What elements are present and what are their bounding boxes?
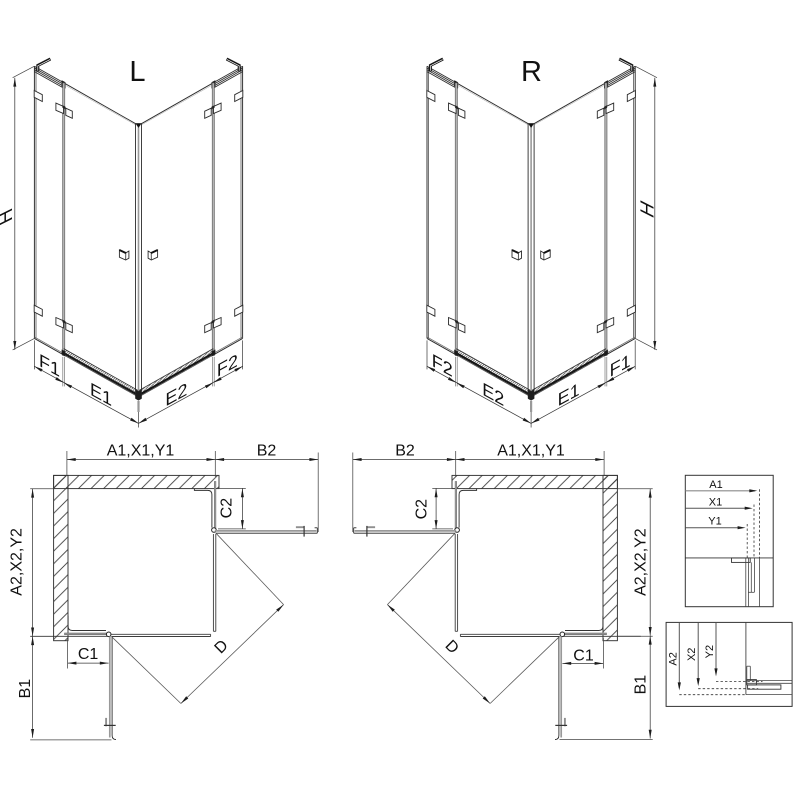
svg-text:Y2: Y2 <box>704 645 716 658</box>
svg-text:A1,X1,Y1: A1,X1,Y1 <box>107 442 175 459</box>
svg-text:A2,X2,Y2: A2,X2,Y2 <box>633 528 650 596</box>
svg-text:Y1: Y1 <box>708 516 721 528</box>
svg-text:X2: X2 <box>686 648 698 661</box>
svg-text:B1: B1 <box>17 679 34 699</box>
svg-text:L: L <box>129 56 145 88</box>
svg-text:C1: C1 <box>573 647 594 664</box>
svg-text:B2: B2 <box>257 442 277 459</box>
svg-text:C2: C2 <box>219 498 236 519</box>
svg-text:C2: C2 <box>413 499 430 520</box>
svg-text:R: R <box>521 56 542 88</box>
svg-text:A2,X2,Y2: A2,X2,Y2 <box>9 528 26 596</box>
svg-text:B2: B2 <box>395 442 415 459</box>
svg-text:A1: A1 <box>709 479 722 491</box>
svg-text:A1,X1,Y1: A1,X1,Y1 <box>497 442 565 459</box>
svg-text:B1: B1 <box>633 675 650 695</box>
svg-text:A2: A2 <box>667 652 679 665</box>
svg-text:C1: C1 <box>78 646 99 663</box>
svg-text:X1: X1 <box>709 496 722 508</box>
